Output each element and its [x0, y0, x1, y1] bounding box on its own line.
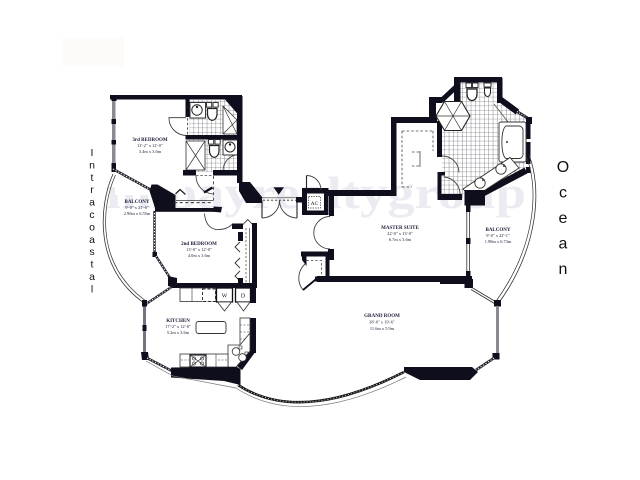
svg-text:1.98m x 6.73m: 1.98m x 6.73m	[485, 239, 512, 244]
svg-text:W: W	[222, 294, 228, 300]
svg-text:22'-0" x 13'-0": 22'-0" x 13'-0"	[387, 231, 413, 236]
svg-text:11'-2" x 12'-0": 11'-2" x 12'-0"	[137, 143, 163, 148]
svg-text:2.90m x 6.55m: 2.90m x 6.55m	[124, 211, 151, 216]
svg-text:AC: AC	[311, 201, 319, 207]
svg-text:5.2m x 3.6m: 5.2m x 3.6m	[167, 330, 190, 335]
svg-text:17'-2" x 12'-0": 17'-2" x 12'-0"	[165, 324, 191, 329]
svg-text:GRAND ROOM: GRAND ROOM	[364, 314, 400, 319]
svg-text:D: D	[241, 294, 245, 300]
svg-text:9'-0" x 21'-6": 9'-0" x 21'-6"	[125, 205, 149, 210]
svg-text:13'-0" x 12'-0": 13'-0" x 12'-0"	[186, 247, 212, 252]
svg-text:9'-0" x 22'-1": 9'-0" x 22'-1"	[486, 233, 510, 238]
svg-text:38'-0" x 19'-6": 38'-0" x 19'-6"	[369, 320, 395, 325]
svg-text:6.7m x 3.6m: 6.7m x 3.6m	[389, 237, 412, 242]
svg-text:11.6m x 5.9m: 11.6m x 5.9m	[370, 326, 395, 331]
svg-text:Intracoastal: Intracoastal	[89, 147, 95, 295]
svg-text:3.4m x 3.6m: 3.4m x 3.6m	[139, 149, 162, 154]
svg-text:Ocean: Ocean	[557, 159, 569, 278]
svg-text:4.0m x 3.6m: 4.0m x 3.6m	[188, 253, 211, 258]
